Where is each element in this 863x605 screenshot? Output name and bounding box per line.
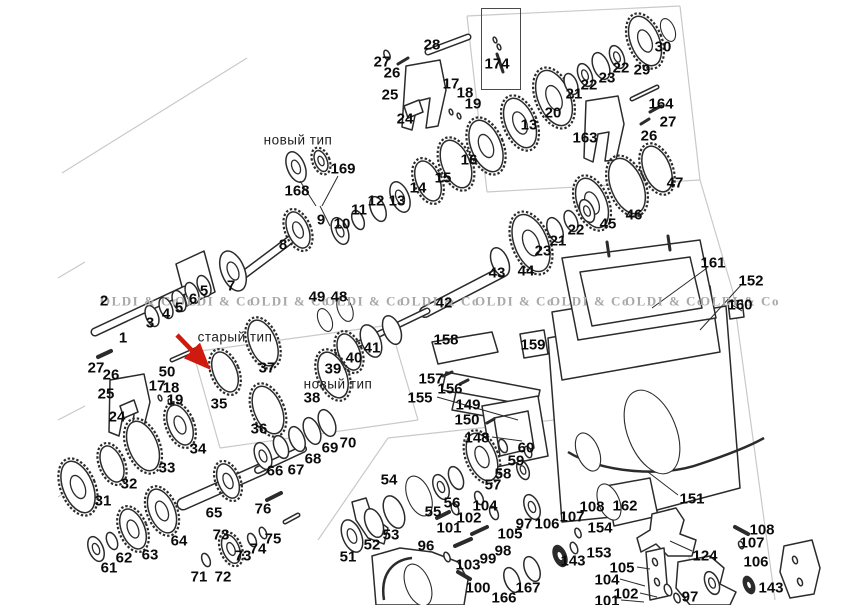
part-callout-32: 32	[121, 477, 138, 492]
part-callout-151: 151	[679, 492, 704, 507]
shaft	[455, 539, 471, 546]
shaft	[668, 236, 670, 250]
part-callout-72: 72	[215, 570, 232, 585]
part-callout-40: 40	[346, 351, 363, 366]
part-callout-96: 96	[418, 539, 435, 554]
part-callout-106: 106	[743, 555, 768, 570]
part-callout-97: 97	[516, 517, 533, 532]
part-callout-107: 107	[739, 536, 764, 551]
part-callout-153: 153	[586, 546, 611, 561]
part-callout-66: 66	[267, 464, 284, 479]
part-callout-162: 162	[612, 499, 637, 514]
part-callout-104: 104	[472, 499, 497, 514]
part-callout-59: 59	[508, 454, 525, 469]
watermark-text: OLDI & Co	[175, 295, 255, 308]
part-callout-55: 55	[425, 505, 442, 520]
ring	[314, 306, 335, 333]
part-callout-169: 169	[330, 162, 355, 177]
part-callout-159: 159	[520, 338, 545, 353]
shaft	[607, 242, 609, 256]
part-callout-155: 155	[407, 391, 432, 406]
part-callout-2: 2	[100, 294, 108, 309]
part-callout-21: 21	[550, 234, 567, 249]
leader-line	[322, 176, 338, 206]
part-callout-37: 37	[259, 361, 276, 376]
section-line	[58, 406, 85, 420]
part-callout-24: 24	[397, 112, 414, 127]
part-callout-124: 124	[692, 549, 717, 564]
part-callout-148: 148	[464, 431, 489, 446]
ring	[448, 109, 453, 116]
part-callout-167: 167	[515, 581, 540, 596]
part-callout-107: 107	[559, 510, 584, 525]
part-callout-43: 43	[489, 266, 506, 281]
section-line	[58, 262, 85, 278]
part-callout-14: 14	[410, 181, 427, 196]
part-callout-13: 13	[389, 194, 406, 209]
part-callout-143: 143	[560, 554, 585, 569]
part-callout-73: 73	[213, 528, 230, 543]
part-callout-154: 154	[587, 521, 612, 536]
ring	[379, 313, 406, 347]
shaft	[267, 493, 281, 500]
part-callout-163: 163	[572, 131, 597, 146]
part-callout-26: 26	[384, 66, 401, 81]
part-callout-67: 67	[288, 463, 305, 478]
part-callout-45: 45	[600, 217, 617, 232]
shaft	[398, 58, 408, 64]
section-line	[680, 6, 700, 180]
part-callout-62: 62	[116, 551, 133, 566]
part-callout-98: 98	[495, 544, 512, 559]
part-callout-10: 10	[334, 217, 351, 232]
part-callout-101: 101	[594, 594, 619, 605]
part-callout-13: 13	[521, 118, 538, 133]
part-callout-38: 38	[304, 391, 321, 406]
ring	[104, 531, 120, 551]
part-callout-26: 26	[641, 129, 658, 144]
part-callout-150: 150	[454, 413, 479, 428]
ring	[206, 348, 243, 396]
type-annotation: старый тип	[198, 330, 273, 344]
part-callout-39: 39	[325, 362, 342, 377]
part-callout-166: 166	[491, 591, 516, 605]
shaft	[735, 527, 748, 534]
part-callout-41: 41	[364, 341, 381, 356]
part-callout-48: 48	[331, 290, 348, 305]
part-callout-22: 22	[568, 223, 585, 238]
part-callout-24: 24	[109, 410, 126, 425]
part-callout-158: 158	[433, 333, 458, 348]
part-callout-36: 36	[251, 422, 268, 437]
shaft	[472, 527, 487, 534]
part-callout-15: 15	[435, 171, 452, 186]
part-callout-100: 100	[465, 581, 490, 596]
part-callout-143: 143	[758, 581, 783, 596]
watermark-text: OLDI & Co	[625, 295, 705, 308]
watermark-text: OLDI & Co	[550, 295, 630, 308]
part-callout-69: 69	[322, 441, 339, 456]
part-outline	[780, 540, 820, 598]
part-callout-46: 46	[626, 208, 643, 223]
ring	[200, 552, 212, 568]
part-callout-1: 1	[119, 331, 127, 346]
part-callout-63: 63	[142, 548, 159, 563]
part-callout-54: 54	[381, 473, 398, 488]
part-callout-3: 3	[146, 316, 154, 331]
part-callout-30: 30	[655, 40, 672, 55]
part-callout-97: 97	[682, 590, 699, 605]
type-annotation: новый тип	[264, 133, 333, 147]
part-callout-152: 152	[738, 274, 763, 289]
part-callout-52: 52	[364, 538, 381, 553]
part-callout-31: 31	[95, 494, 112, 509]
watermark-text: OLDI & Co	[475, 295, 555, 308]
part-callout-6: 6	[189, 292, 197, 307]
part-callout-53: 53	[383, 528, 400, 543]
part-callout-106: 106	[534, 517, 559, 532]
part-callout-149: 149	[455, 398, 480, 413]
part-callout-9: 9	[317, 213, 325, 228]
part-callout-174: 174	[484, 57, 509, 72]
part-callout-5: 5	[175, 301, 183, 316]
part-callout-11: 11	[351, 203, 367, 218]
part-callout-19: 19	[167, 393, 184, 408]
part-callout-35: 35	[211, 397, 228, 412]
part-callout-49: 49	[309, 290, 326, 305]
part-callout-56: 56	[444, 496, 461, 511]
part-callout-44: 44	[518, 264, 535, 279]
part-callout-29: 29	[634, 63, 651, 78]
ring	[574, 527, 583, 538]
inset-box-174	[481, 8, 521, 90]
part-callout-34: 34	[190, 442, 207, 457]
part-callout-25: 25	[98, 387, 115, 402]
part-callout-65: 65	[206, 506, 223, 521]
part-callout-22: 22	[613, 61, 630, 76]
part-callout-70: 70	[340, 436, 357, 451]
part-callout-22: 22	[581, 78, 598, 93]
part-callout-75: 75	[265, 532, 282, 547]
part-callout-16: 16	[461, 153, 478, 168]
part-callout-156: 156	[437, 382, 462, 397]
part-callout-19: 19	[465, 97, 482, 112]
part-callout-51: 51	[340, 550, 357, 565]
part-callout-20: 20	[545, 106, 562, 121]
part-callout-28: 28	[424, 38, 441, 53]
shaft	[98, 351, 111, 357]
part-callout-4: 4	[162, 307, 170, 322]
part-callout-27: 27	[660, 115, 677, 130]
part-callout-25: 25	[382, 88, 399, 103]
part-callout-68: 68	[305, 452, 322, 467]
part-callout-47: 47	[667, 176, 684, 191]
part-callout-103: 103	[455, 558, 480, 573]
shaft	[641, 119, 649, 124]
part-callout-7: 7	[227, 279, 235, 294]
part-callout-12: 12	[368, 194, 385, 209]
section-line	[62, 58, 247, 173]
ring	[456, 113, 461, 120]
part-callout-26: 26	[103, 368, 120, 383]
part-callout-33: 33	[159, 461, 176, 476]
part-callout-76: 76	[255, 502, 272, 517]
part-callout-42: 42	[436, 296, 453, 311]
part-callout-64: 64	[171, 534, 188, 549]
part-callout-160: 160	[727, 298, 752, 313]
part-callout-71: 71	[191, 570, 208, 585]
part-callout-8: 8	[279, 238, 287, 253]
part-callout-5: 5	[200, 284, 208, 299]
parts-diagram: OLDI & CoOLDI & CoOLDI & CoOLDI & CoOLDI…	[0, 0, 863, 605]
part-callout-161: 161	[700, 256, 725, 271]
part-callout-168: 168	[284, 184, 309, 199]
part-callout-164: 164	[648, 97, 673, 112]
